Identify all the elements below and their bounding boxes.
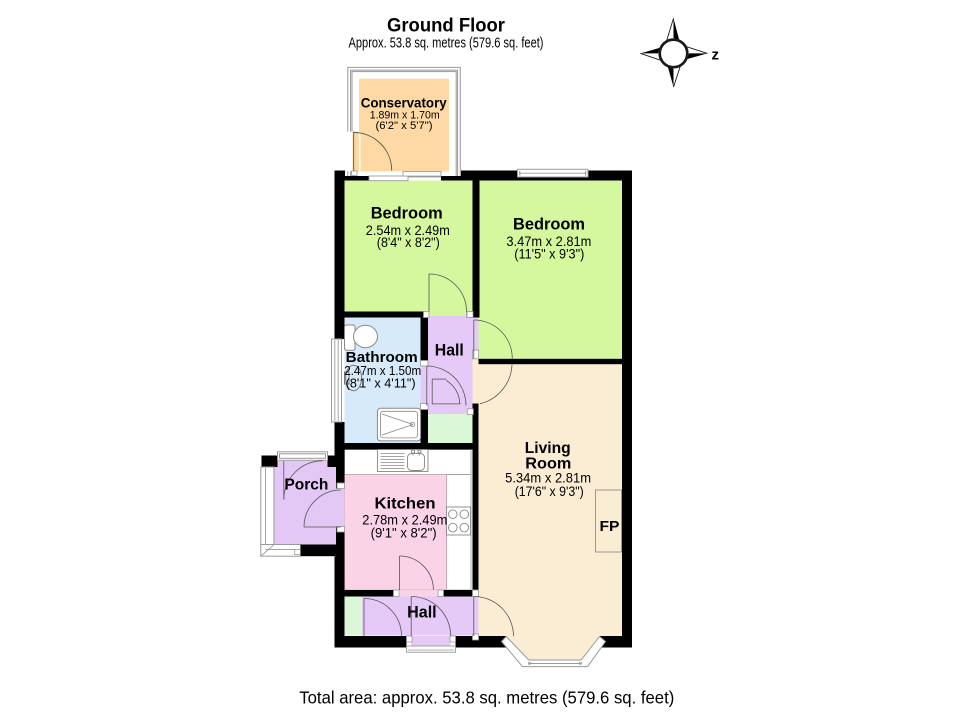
svg-text:(17'6" x 9'3"): (17'6" x 9'3"): [515, 483, 584, 499]
svg-text:Conservatory: Conservatory: [361, 94, 447, 110]
svg-text:(11'5" x 9'3"): (11'5" x 9'3"): [514, 245, 584, 261]
svg-text:FP: FP: [600, 518, 620, 535]
svg-text:z: z: [712, 46, 720, 63]
svg-text:Living: Living: [525, 440, 571, 457]
svg-text:(9'1" x 8'2"): (9'1" x 8'2"): [371, 525, 437, 541]
svg-text:Hall: Hall: [407, 604, 437, 622]
svg-text:(8'1" x 4'11"): (8'1" x 4'11"): [346, 375, 416, 390]
svg-text:(6'2" x 5'7"): (6'2" x 5'7"): [376, 120, 433, 132]
svg-text:(8'4" x 8'2"): (8'4" x 8'2"): [377, 234, 440, 250]
svg-text:Hall: Hall: [435, 341, 464, 359]
svg-text:Kitchen: Kitchen: [375, 495, 436, 512]
svg-text:Bedroom: Bedroom: [513, 215, 585, 233]
svg-text:Bedroom: Bedroom: [371, 205, 443, 223]
svg-text:Total area: approx. 53.8 sq. m: Total area: approx. 53.8 sq. metres (579…: [299, 688, 674, 708]
svg-text:Ground Floor: Ground Floor: [387, 16, 506, 37]
svg-text:Porch: Porch: [284, 477, 328, 494]
svg-text:Approx. 53.8 sq. metres (579.6: Approx. 53.8 sq. metres (579.6 sq. feet): [349, 35, 544, 51]
